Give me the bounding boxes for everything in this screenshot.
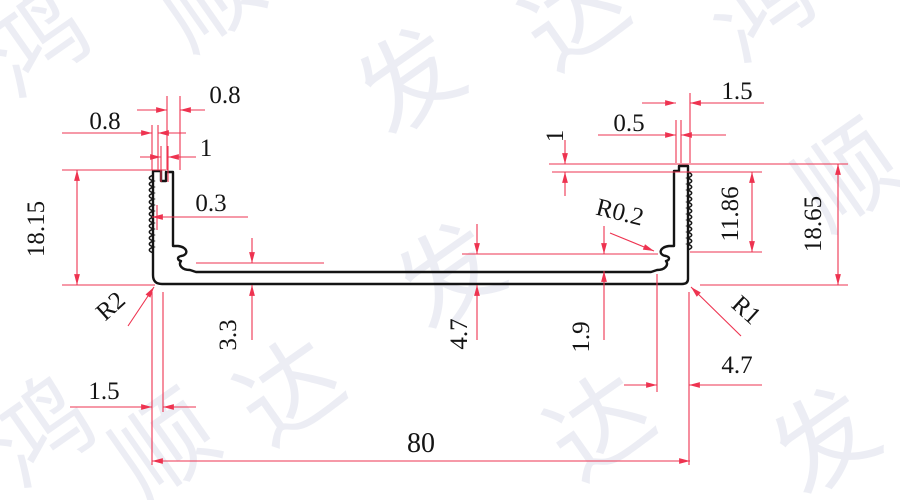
dim-knurl-height: 11.86 (717, 186, 744, 241)
dim-top-notch-width: 0.8 (209, 82, 240, 109)
watermark-char: 达 (501, 0, 650, 93)
dim-right-wall: 1.5 (721, 78, 752, 105)
watermark-char: 鸿 (686, 0, 835, 83)
radius-label-r2: R2 (91, 287, 131, 327)
watermark-char: 鸿 (0, 0, 110, 118)
watermark-char: 发 (336, 5, 485, 158)
dim-tooth-depth: 0.3 (195, 190, 226, 217)
radius-label-r0-2: R0.2 (593, 194, 646, 232)
dim-overall-width: 80 (407, 428, 435, 459)
radius-label-r1: R1 (726, 291, 766, 331)
dim-base-step: 4.7 (446, 318, 473, 349)
dim-slot-width: 1 (200, 135, 213, 162)
dim-right-height: 18.65 (800, 196, 827, 252)
profile-drawing: 鸿 顺 发 达 鸿 顺 发 达 鸿 顺 达 发 (0, 0, 900, 500)
watermark-char: 达 (526, 350, 675, 500)
watermark-layer: 鸿 顺 发 达 鸿 顺 发 达 鸿 顺 达 发 (0, 0, 900, 500)
watermark-char: 发 (751, 365, 900, 500)
dim-right-lip: 0.5 (613, 110, 644, 137)
dim-left-prong-width: 0.8 (89, 108, 120, 135)
dim-left-height: 18.15 (23, 201, 50, 257)
drawing-canvas: 鸿 顺 发 达 鸿 顺 发 达 鸿 顺 达 发 (0, 0, 900, 500)
watermark-char: 顺 (136, 0, 285, 73)
watermark-char: 顺 (774, 100, 900, 253)
dim-right-top-offset: 1 (542, 130, 569, 143)
dim-boss-height: 3.3 (215, 319, 242, 350)
dim-boss-inner: 1.9 (568, 321, 595, 352)
dim-right-step: 4.7 (721, 352, 752, 379)
leader-r0-2 (610, 233, 654, 251)
dim-bottom-thickness: 1.5 (88, 378, 119, 405)
leader-r2 (128, 287, 154, 326)
